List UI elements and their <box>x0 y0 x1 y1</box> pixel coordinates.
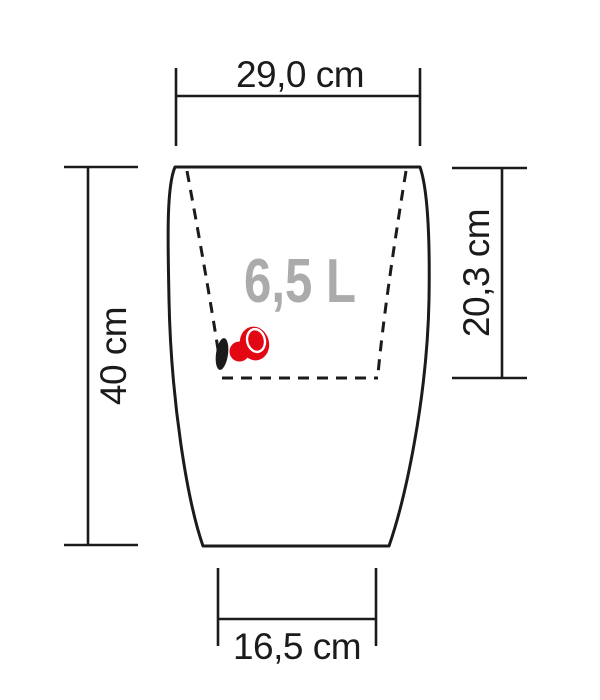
inner-liner-right-edge <box>378 171 406 374</box>
pot-outline <box>168 167 429 546</box>
dim-label-top-width: 29,0 cm <box>236 54 364 95</box>
planter-dimension-diagram: 6,5 L 29,0 cm 40 cm 20,3 cm <box>0 0 600 700</box>
diagram-canvas: 6,5 L 29,0 cm 40 cm 20,3 cm <box>0 0 600 700</box>
dimension-base-width: 16,5 cm <box>218 568 376 667</box>
dim-label-height: 40 cm <box>93 307 134 405</box>
volume-label: 6,5 L <box>244 247 356 316</box>
dim-label-inner-depth: 20,3 cm <box>456 209 497 337</box>
inner-liner-left-edge <box>187 171 222 376</box>
dimension-inner-depth: 20,3 cm <box>452 168 527 378</box>
dimension-height: 40 cm <box>64 167 138 545</box>
dim-label-base-width: 16,5 cm <box>233 626 361 667</box>
dimension-top-width: 29,0 cm <box>176 54 420 146</box>
water-level-indicator-icon <box>230 323 273 363</box>
